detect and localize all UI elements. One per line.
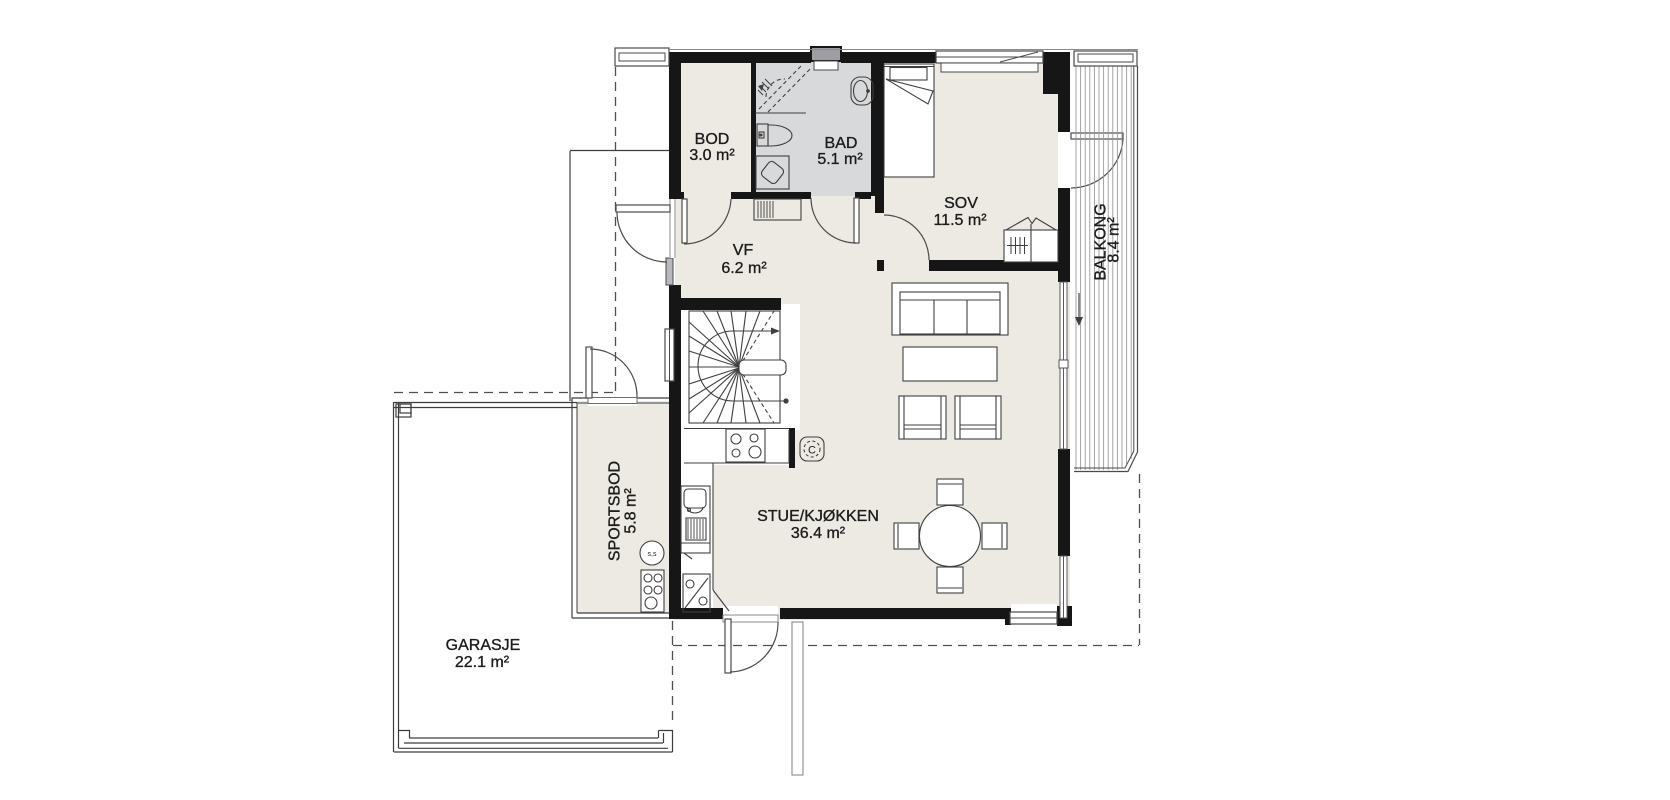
svg-text:5.8 m²: 5.8 m²	[623, 488, 640, 534]
svg-text:5.1 m²: 5.1 m²	[817, 151, 863, 168]
svg-text:C: C	[808, 445, 816, 457]
svg-text:BAD: BAD	[825, 135, 858, 152]
svg-text:BOD: BOD	[695, 131, 730, 148]
svg-text:36.4 m²: 36.4 m²	[791, 525, 846, 542]
svg-text:SPORTSBOD: SPORTSBOD	[607, 461, 624, 561]
svg-text:6.2 m²: 6.2 m²	[721, 260, 767, 277]
svg-text:s,s: s,s	[648, 551, 657, 558]
svg-text:STUE/KJØKKEN: STUE/KJØKKEN	[757, 508, 879, 525]
svg-text:VF: VF	[733, 242, 754, 259]
svg-text:11.5 m²: 11.5 m²	[933, 212, 987, 229]
svg-text:22.1 m²: 22.1 m²	[455, 654, 510, 671]
svg-text:GARASJE: GARASJE	[446, 637, 521, 654]
svg-text:3.0 m²: 3.0 m²	[689, 147, 735, 164]
svg-text:SOV: SOV	[944, 195, 978, 212]
svg-text:8.4 m²: 8.4 m²	[1106, 217, 1123, 263]
